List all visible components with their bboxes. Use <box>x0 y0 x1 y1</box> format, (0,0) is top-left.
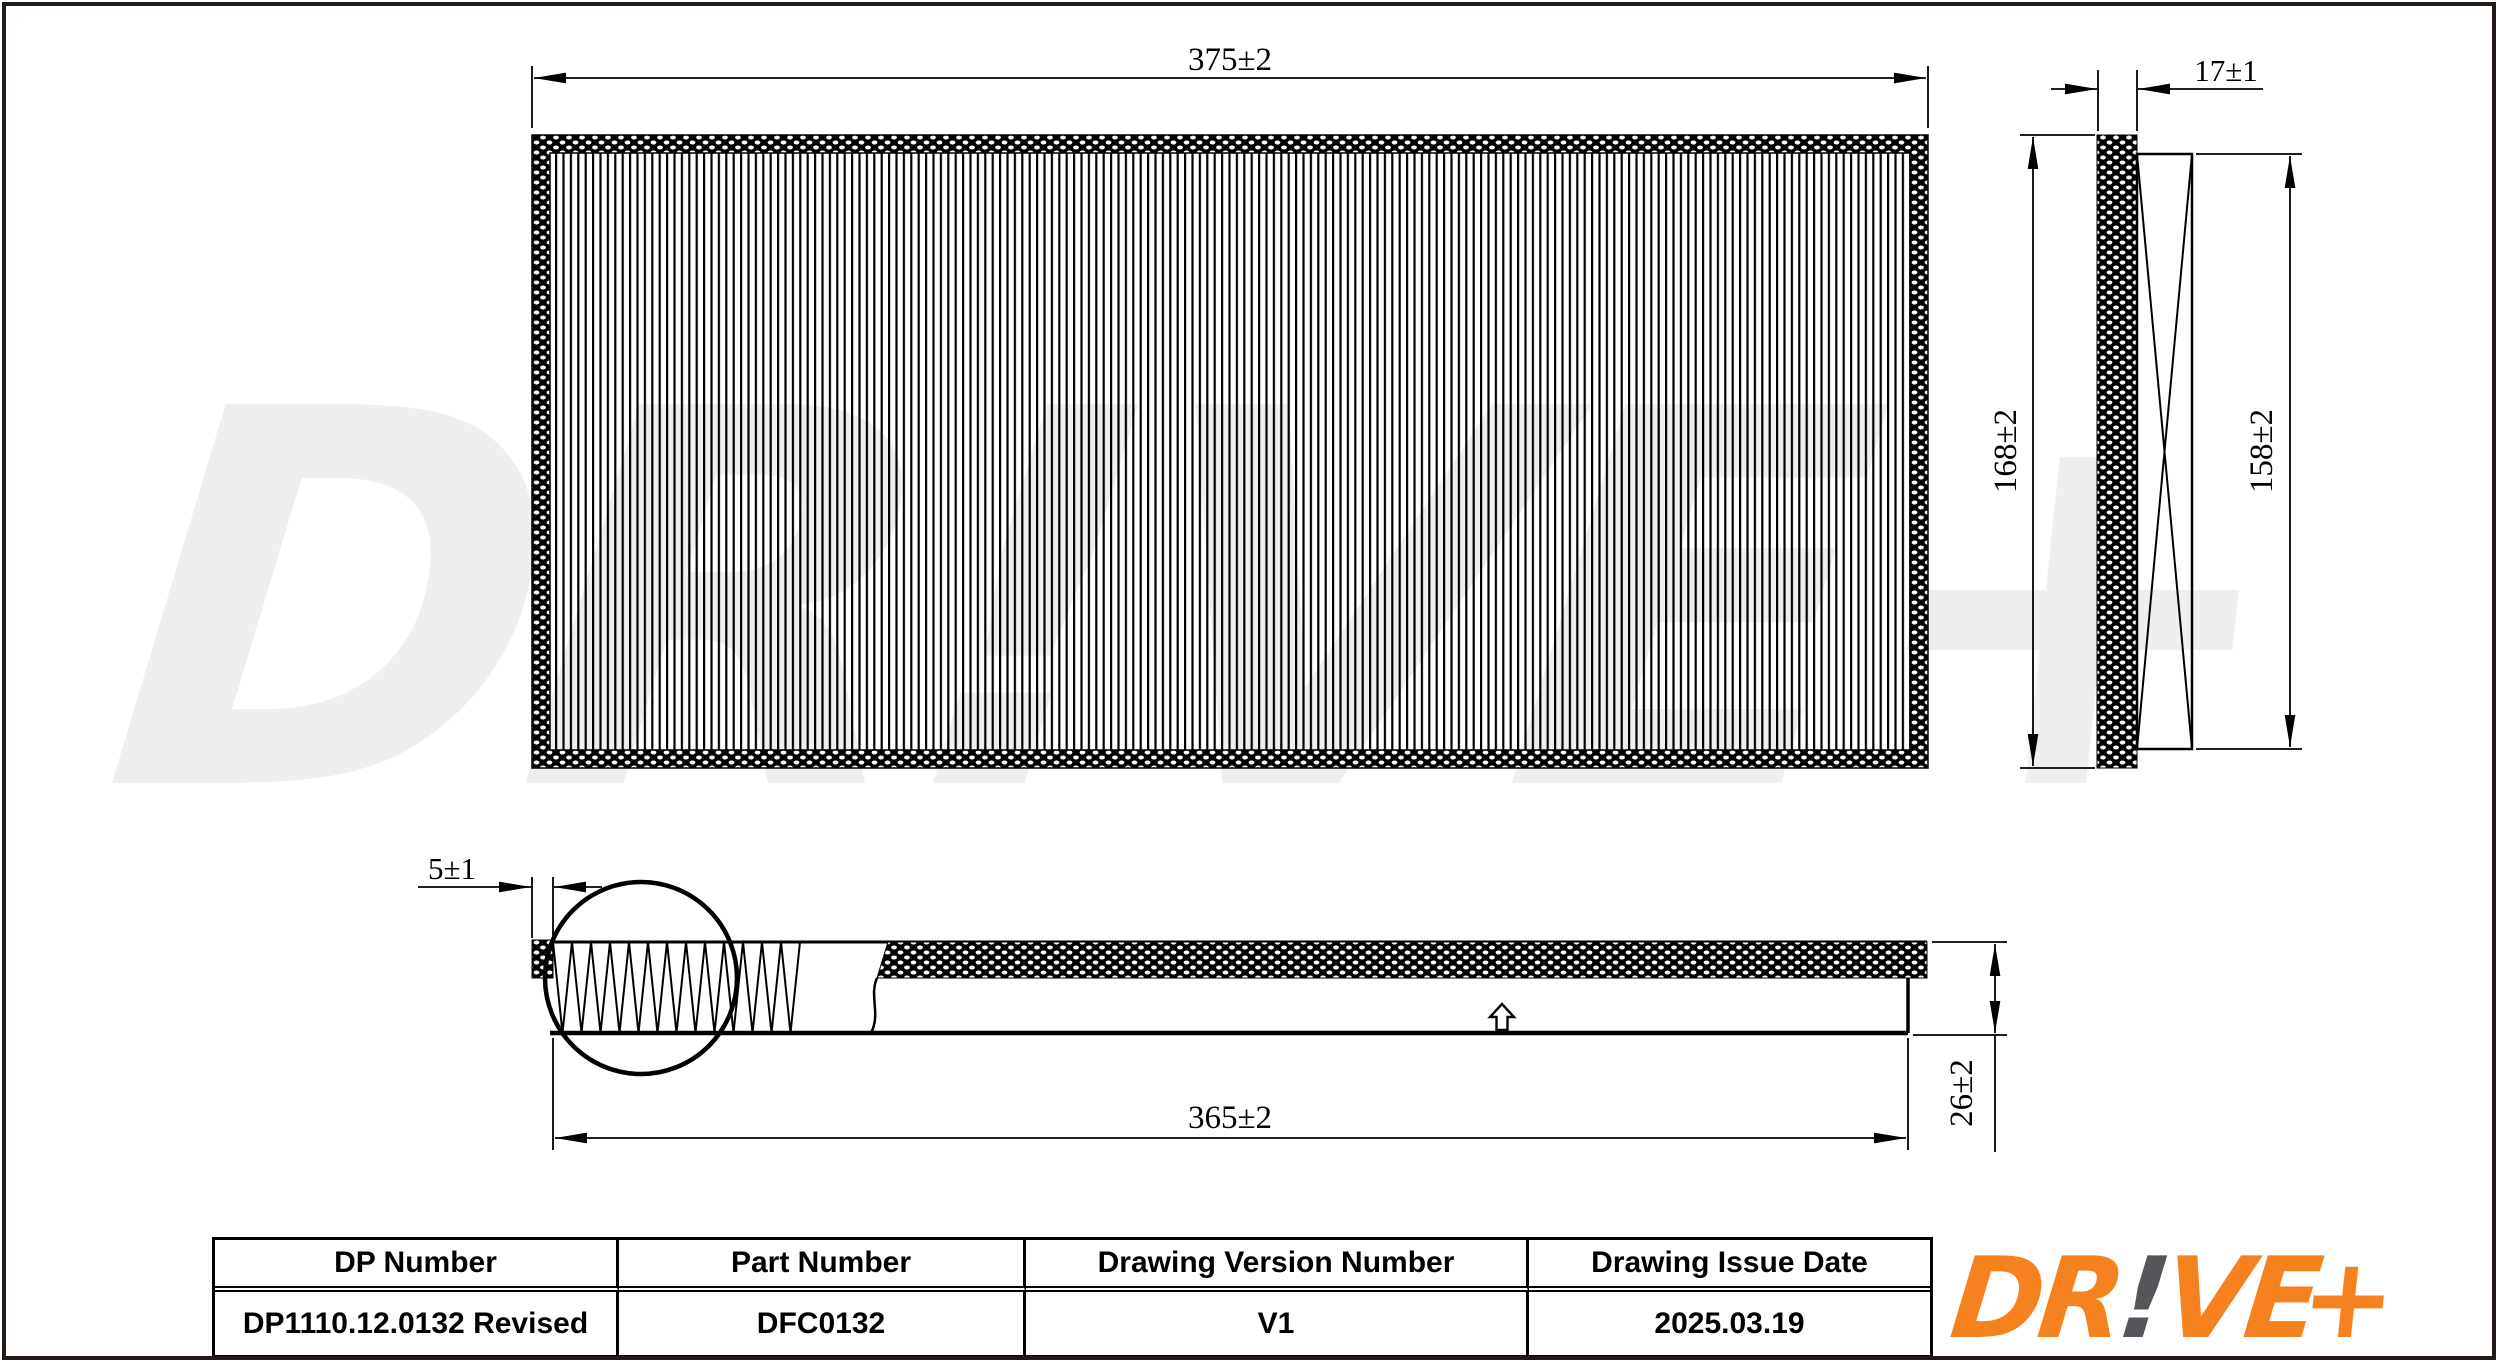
table-header-issue-date: Drawing Issue Date <box>1529 1240 1930 1292</box>
technical-drawing: 375±2 17±1 168±2 158 <box>0 0 2500 1363</box>
airflow-up-arrow-icon <box>1490 1004 1514 1030</box>
section-break-curve <box>871 978 877 1033</box>
drive-plus-logo: DR!VE+ <box>1946 1243 2395 1355</box>
dim-label-bottom-width: 365±2 <box>1188 1100 1272 1136</box>
section-pleat-zigzag <box>553 942 800 1033</box>
side-view-media-bar <box>2097 135 2137 768</box>
dimension-height-outer: 168±2 <box>1988 135 2095 768</box>
dim-label-height-inner: 158±2 <box>2244 409 2280 493</box>
dimension-top-width: 375±2 <box>532 42 1928 128</box>
dim-label-height-outer: 168±2 <box>1988 409 2024 493</box>
table-value-issue-date: 2025.03.19 <box>1529 1292 1930 1355</box>
dimension-bottom-width: 365±2 <box>553 1038 1908 1150</box>
dim-label-edge-offset: 5±1 <box>428 851 476 886</box>
filter-side-view <box>2097 135 2192 768</box>
dim-label-thickness: 17±1 <box>2194 53 2258 88</box>
filter-top-view <box>532 135 1928 768</box>
filter-section-view <box>532 882 1927 1074</box>
table-header-part-number: Part Number <box>619 1240 1026 1292</box>
dim-label-top-width: 375±2 <box>1188 42 1272 78</box>
top-view-pleats <box>550 153 1910 750</box>
logo-plus-sign: + <box>2295 1234 2397 1363</box>
drawing-page: DR!VE+ <box>0 0 2500 1363</box>
dimension-height-inner: 158±2 <box>2196 154 2302 749</box>
dim-label-section-height: 26±2 <box>1944 1059 1980 1127</box>
table-header-dp-number: DP Number <box>215 1240 619 1292</box>
table-value-dp-number: DP1110.12.0132 Revised <box>215 1292 619 1355</box>
table-value-drawing-version: V1 <box>1026 1292 1529 1355</box>
logo-text-dr: DR <box>1945 1234 2126 1363</box>
section-media-band <box>877 942 1927 978</box>
title-block-table: DP Number Part Number Drawing Version Nu… <box>212 1237 1933 1358</box>
dimension-edge-offset: 5±1 <box>418 851 602 938</box>
dimension-thickness: 17±1 <box>2051 53 2263 131</box>
table-value-part-number: DFC0132 <box>619 1292 1026 1355</box>
table-header-drawing-version: Drawing Version Number <box>1026 1240 1529 1292</box>
